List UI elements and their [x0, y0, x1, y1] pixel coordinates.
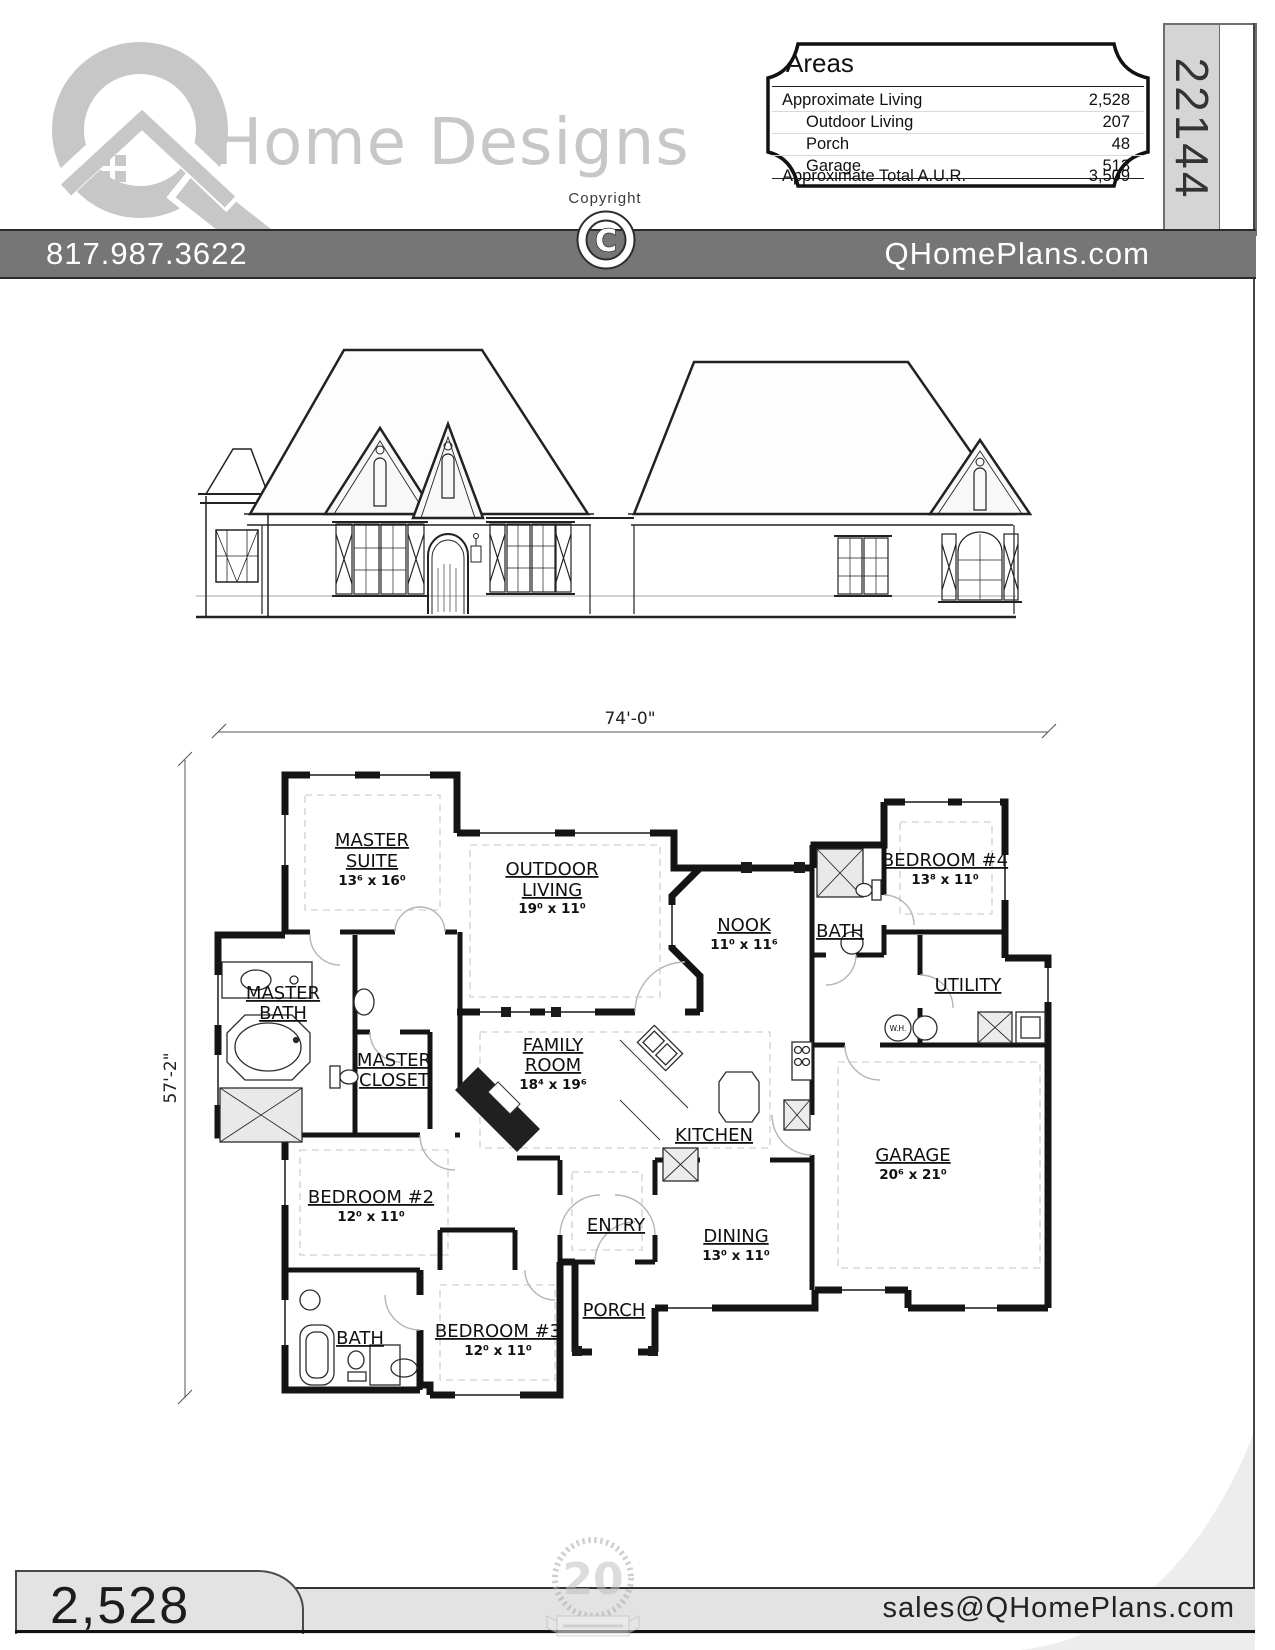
area-label: Approximate Living: [782, 90, 922, 110]
footer-living-area: 2,528: [50, 1576, 190, 1636]
website-url: QHomePlans.com: [884, 231, 1150, 277]
svg-text:BEDROOM #2: BEDROOM #2: [308, 1187, 434, 1208]
plan-sheet-page: Home Designs: [0, 0, 1275, 1650]
room-labels: MASTER SUITE 13⁶ x 16⁰ OUTDOOR LIVING 19…: [246, 830, 1008, 1359]
elevation-drawing: [196, 350, 1030, 617]
svg-text:11⁰ x 11⁶: 11⁰ x 11⁶: [710, 937, 778, 953]
svg-text:NOOK: NOOK: [717, 915, 772, 936]
room-label-dining: DINING 13⁰ x 11⁰: [702, 1226, 770, 1264]
areas-panel-title: Areas: [786, 48, 854, 79]
svg-text:MASTER: MASTER: [246, 983, 320, 1004]
svg-text:KITCHEN: KITCHEN: [675, 1125, 753, 1146]
svg-text:19⁰ x 11⁰: 19⁰ x 11⁰: [518, 901, 586, 917]
room-label-bath-top: BATH: [816, 921, 864, 942]
toilet-icon: [348, 1351, 366, 1381]
room-label-bedroom-2: BEDROOM #2 12⁰ x 11⁰: [308, 1187, 434, 1225]
svg-text:ENTRY: ENTRY: [587, 1215, 646, 1236]
room-label-bedroom-3: BEDROOM #3 12⁰ x 11⁰: [435, 1321, 561, 1359]
room-label-kitchen: KITCHEN: [675, 1125, 753, 1146]
svg-text:BATH: BATH: [336, 1328, 384, 1349]
svg-text:12⁰ x 11⁰: 12⁰ x 11⁰: [337, 1209, 405, 1225]
porch-lantern-icon: [471, 534, 481, 563]
svg-text:BEDROOM #3: BEDROOM #3: [435, 1321, 561, 1342]
room-label-bedroom-4: BEDROOM #4 13⁸ x 11⁰: [882, 850, 1008, 888]
floor-plan: 74'-0" 57'-2": [161, 709, 1056, 1404]
footer-email: sales@QHomePlans.com: [883, 1592, 1235, 1625]
areas-row: Outdoor Living 207: [782, 112, 1130, 132]
svg-text:20⁶ x 21⁰: 20⁶ x 21⁰: [879, 1167, 947, 1183]
areas-total-row: Approximate Total A.U.R. 3,509: [782, 166, 1130, 186]
svg-text:DINING: DINING: [703, 1226, 768, 1247]
anniversary-badge-icon: 20: [535, 1528, 655, 1646]
copyright-symbol-icon: C: [573, 206, 639, 274]
svg-text:13⁰ x 11⁰: 13⁰ x 11⁰: [702, 1248, 770, 1264]
svg-text:PORCH: PORCH: [583, 1300, 646, 1321]
logo-brand-text: Home Designs: [214, 106, 690, 180]
area-label: Approximate Total A.U.R.: [782, 166, 966, 186]
svg-text:MASTER: MASTER: [335, 830, 409, 851]
plan-number: 22144: [1165, 58, 1219, 201]
svg-text:SUITE: SUITE: [346, 851, 398, 872]
copyright-label: Copyright: [545, 190, 665, 207]
svg-text:LIVING: LIVING: [522, 880, 582, 901]
svg-text:W.H.: W.H.: [890, 1024, 907, 1033]
svg-text:UTILITY: UTILITY: [935, 975, 1003, 996]
room-label-entry: ENTRY: [587, 1215, 646, 1236]
svg-text:BEDROOM #4: BEDROOM #4: [882, 850, 1008, 871]
phone-number: 817.987.3622: [46, 231, 248, 277]
area-value: 2,528: [1089, 90, 1130, 110]
badge-number: 20: [562, 1554, 623, 1605]
areas-row: Approximate Living 2,528: [782, 90, 1130, 110]
room-label-master-closet: MASTER CLOSET: [357, 1050, 431, 1091]
svg-text:18⁴ x 19⁶: 18⁴ x 19⁶: [519, 1077, 587, 1093]
svg-text:FAMILY: FAMILY: [523, 1035, 584, 1056]
room-label-outdoor-living: OUTDOOR LIVING 19⁰ x 11⁰: [505, 859, 598, 917]
plan-width-dimension: 74'-0": [604, 709, 655, 729]
svg-text:12⁰ x 11⁰: 12⁰ x 11⁰: [464, 1343, 532, 1359]
svg-text:CLOSET: CLOSET: [359, 1070, 430, 1091]
plan-number-tab-strip: 22144: [1165, 25, 1220, 234]
area-value: 207: [1102, 112, 1130, 132]
areas-title-rule: [772, 86, 1144, 87]
svg-text:13⁸ x 11⁰: 13⁸ x 11⁰: [911, 872, 979, 888]
room-label-porch: PORCH: [583, 1300, 646, 1321]
svg-text:MASTER: MASTER: [357, 1050, 431, 1071]
svg-text:C: C: [595, 224, 617, 259]
area-label: Outdoor Living: [806, 112, 913, 132]
plan-height-dimension: 57'-2": [161, 1052, 181, 1103]
svg-text:GARAGE: GARAGE: [875, 1145, 950, 1166]
areas-panel: Areas Approximate Living 2,528 Outdoor L…: [764, 40, 1152, 190]
room-label-master-suite: MASTER SUITE 13⁶ x 16⁰: [335, 830, 409, 889]
plan-number-tab: 22144: [1163, 23, 1257, 236]
logo-house-window-icon: [99, 155, 126, 182]
room-label-utility: UTILITY: [935, 975, 1003, 996]
svg-text:13⁶ x 16⁰: 13⁶ x 16⁰: [338, 873, 406, 889]
label-water-heater: W.H.: [890, 1024, 907, 1033]
area-value: 3,509: [1089, 166, 1130, 186]
room-label-bath-bottom: BATH: [336, 1328, 384, 1349]
area-label: Porch: [806, 134, 849, 154]
areas-row: Porch 48: [782, 134, 1130, 154]
svg-text:ROOM: ROOM: [525, 1055, 581, 1076]
svg-text:OUTDOOR: OUTDOOR: [505, 859, 598, 880]
room-label-garage: GARAGE 20⁶ x 21⁰: [875, 1145, 950, 1183]
svg-text:BATH: BATH: [816, 921, 864, 942]
interior-walls: [285, 802, 1048, 1390]
area-value: 48: [1112, 134, 1130, 154]
room-label-family-room: FAMILY ROOM 18⁴ x 19⁶: [519, 1035, 587, 1093]
room-label-nook: NOOK 11⁰ x 11⁶: [710, 915, 778, 953]
svg-text:BATH: BATH: [259, 1003, 307, 1024]
